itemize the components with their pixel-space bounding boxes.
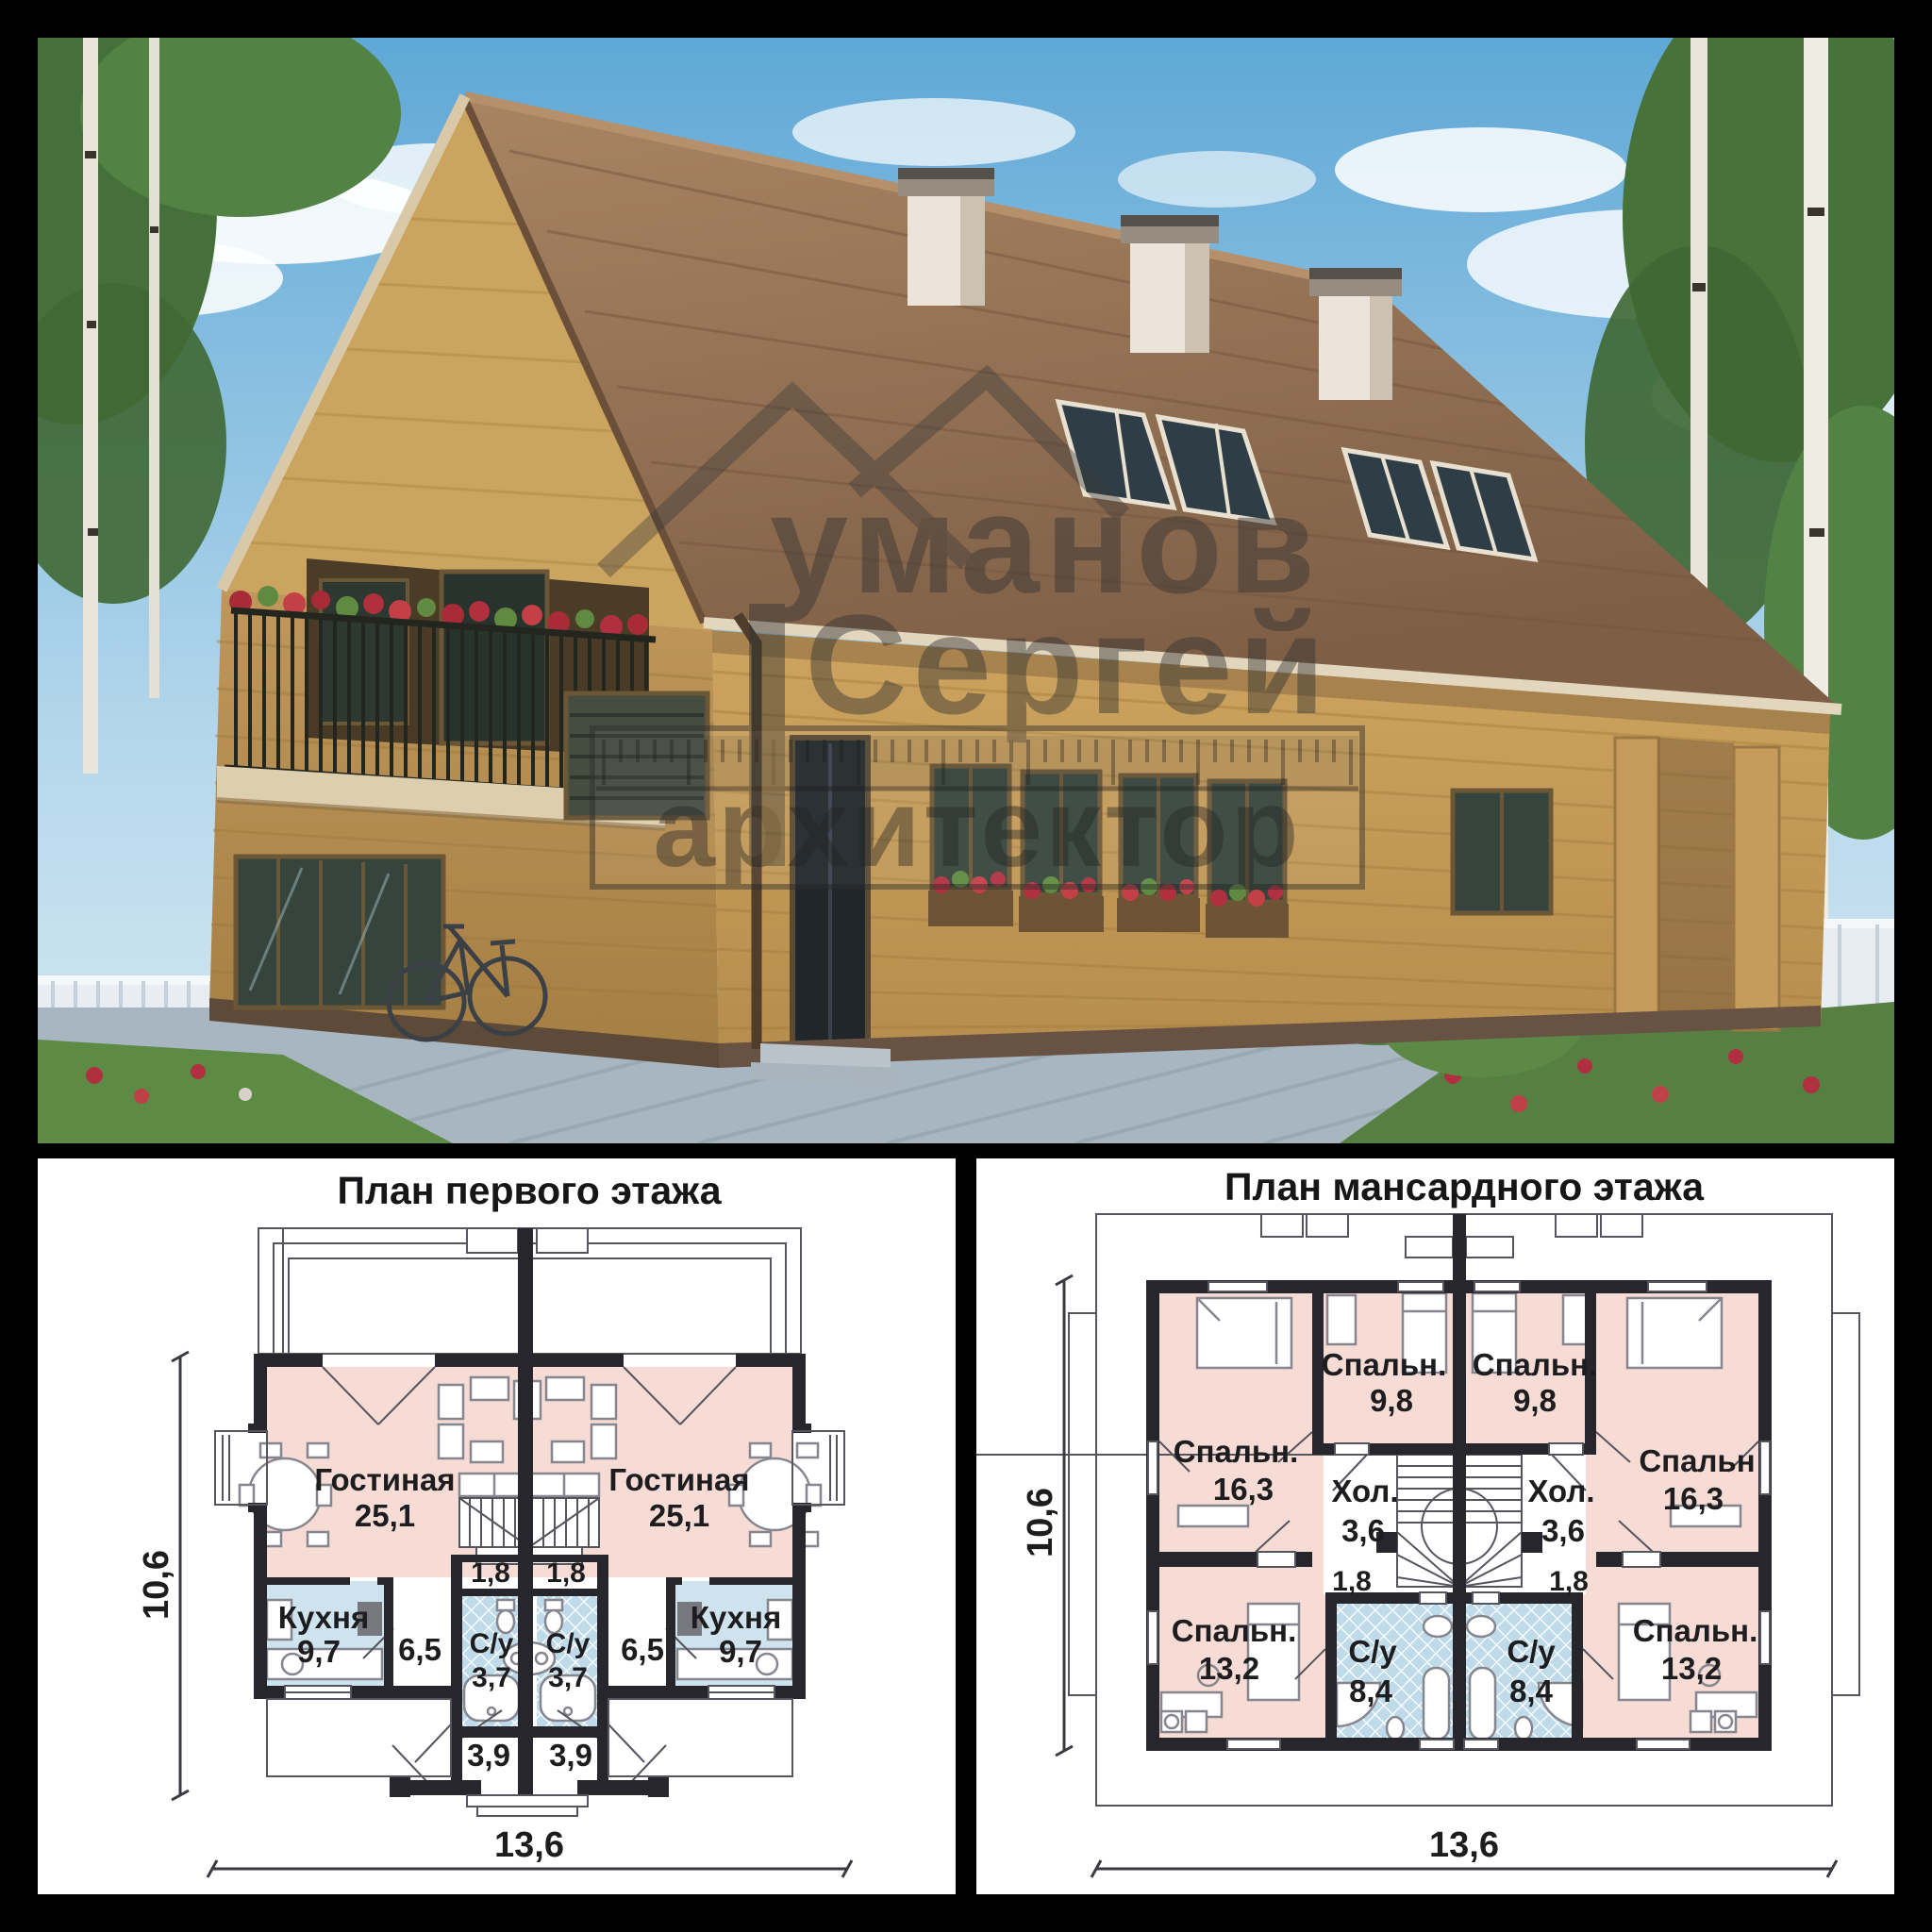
- landing-left-label: 1,8: [1332, 1566, 1372, 1597]
- wc-right-name: С/у: [1507, 1634, 1556, 1669]
- attic-floor-plan: План мансардного этажа: [976, 1158, 1894, 1894]
- landing-right-label: 1,8: [1549, 1566, 1589, 1597]
- house-render-photo: уманов Сергей: [38, 38, 1894, 1143]
- porch-column: [1615, 738, 1658, 1021]
- watermark-line3: архитектор: [653, 766, 1301, 891]
- first-floor-title: План первого этажа: [337, 1169, 722, 1212]
- dim-width: 13,6: [1429, 1825, 1499, 1865]
- kitchen-right-name: Кухня: [691, 1600, 781, 1635]
- kitchen-right-area: 9,7: [719, 1634, 762, 1669]
- hall-right-name: Хол.: [1527, 1474, 1594, 1508]
- house-scene: уманов Сергей: [38, 38, 1894, 1143]
- living-left-name: Гостиная: [314, 1462, 455, 1497]
- hall-left-area: 3,6: [1341, 1513, 1385, 1548]
- bedroom-top-right-name: Спальн.: [1473, 1347, 1597, 1382]
- living-left-area: 25,1: [355, 1498, 415, 1533]
- wc-right-area: 8,4: [1509, 1674, 1554, 1708]
- porch-column: [1734, 747, 1779, 1030]
- window-band: [236, 857, 443, 1008]
- first-floor-plan-panel: План первого этажа: [38, 1158, 956, 1894]
- hall-left-label: 6,5: [398, 1632, 441, 1667]
- bedroom-top-right-area: 9,8: [1513, 1383, 1557, 1418]
- attic-floor-plan-panel: План мансардного этажа: [976, 1158, 1894, 1894]
- kitchen-left-name: Кухня: [278, 1600, 369, 1635]
- bedroom-mid-right-area: 16,3: [1663, 1481, 1724, 1516]
- entry-left-label: 3,9: [467, 1738, 510, 1773]
- bedroom-bottom-left-area: 13,2: [1199, 1651, 1259, 1686]
- first-floor-plan: План первого этажа: [38, 1158, 956, 1894]
- entry-right-label: 3,9: [549, 1738, 592, 1773]
- hall-right-label: 6,5: [621, 1632, 664, 1667]
- hall-left-name: Хол.: [1331, 1474, 1398, 1508]
- living-right-name: Гостиная: [608, 1462, 749, 1497]
- wc-left-area: 3,7: [472, 1662, 511, 1693]
- watermark-line2: Сергей: [805, 585, 1330, 743]
- wc-left-name: С/у: [470, 1628, 514, 1659]
- attic-floor-title: План мансардного этажа: [1224, 1165, 1705, 1208]
- dim-height: 10,6: [137, 1550, 176, 1620]
- dim-height: 10,6: [1021, 1488, 1060, 1557]
- wc-right-name: С/у: [546, 1628, 591, 1659]
- bedroom-mid-right-name: Спальн: [1639, 1443, 1755, 1478]
- closet-left-label: 1,8: [471, 1557, 510, 1589]
- bedroom-bottom-left-name: Спальн.: [1172, 1613, 1296, 1648]
- wc-left-area: 8,4: [1349, 1674, 1393, 1708]
- closet-right-label: 1,8: [546, 1557, 586, 1589]
- bedroom-bottom-right-area: 13,2: [1661, 1651, 1722, 1686]
- hall-right-area: 3,6: [1541, 1513, 1585, 1548]
- bedroom-top-left-area: 9,8: [1370, 1383, 1413, 1418]
- kitchen-left-area: 9,7: [297, 1634, 341, 1669]
- bedroom-mid-left-name: Спальн.: [1174, 1434, 1298, 1469]
- bedroom-bottom-right-name: Спальн.: [1633, 1613, 1757, 1648]
- wc-left-name: С/у: [1348, 1634, 1397, 1669]
- bedroom-top-left-name: Спальн.: [1322, 1347, 1446, 1382]
- wc-right-area: 3,7: [548, 1662, 588, 1693]
- dim-width: 13,6: [494, 1825, 564, 1865]
- living-right-area: 25,1: [649, 1498, 709, 1533]
- bedroom-mid-left-area: 16,3: [1213, 1472, 1274, 1507]
